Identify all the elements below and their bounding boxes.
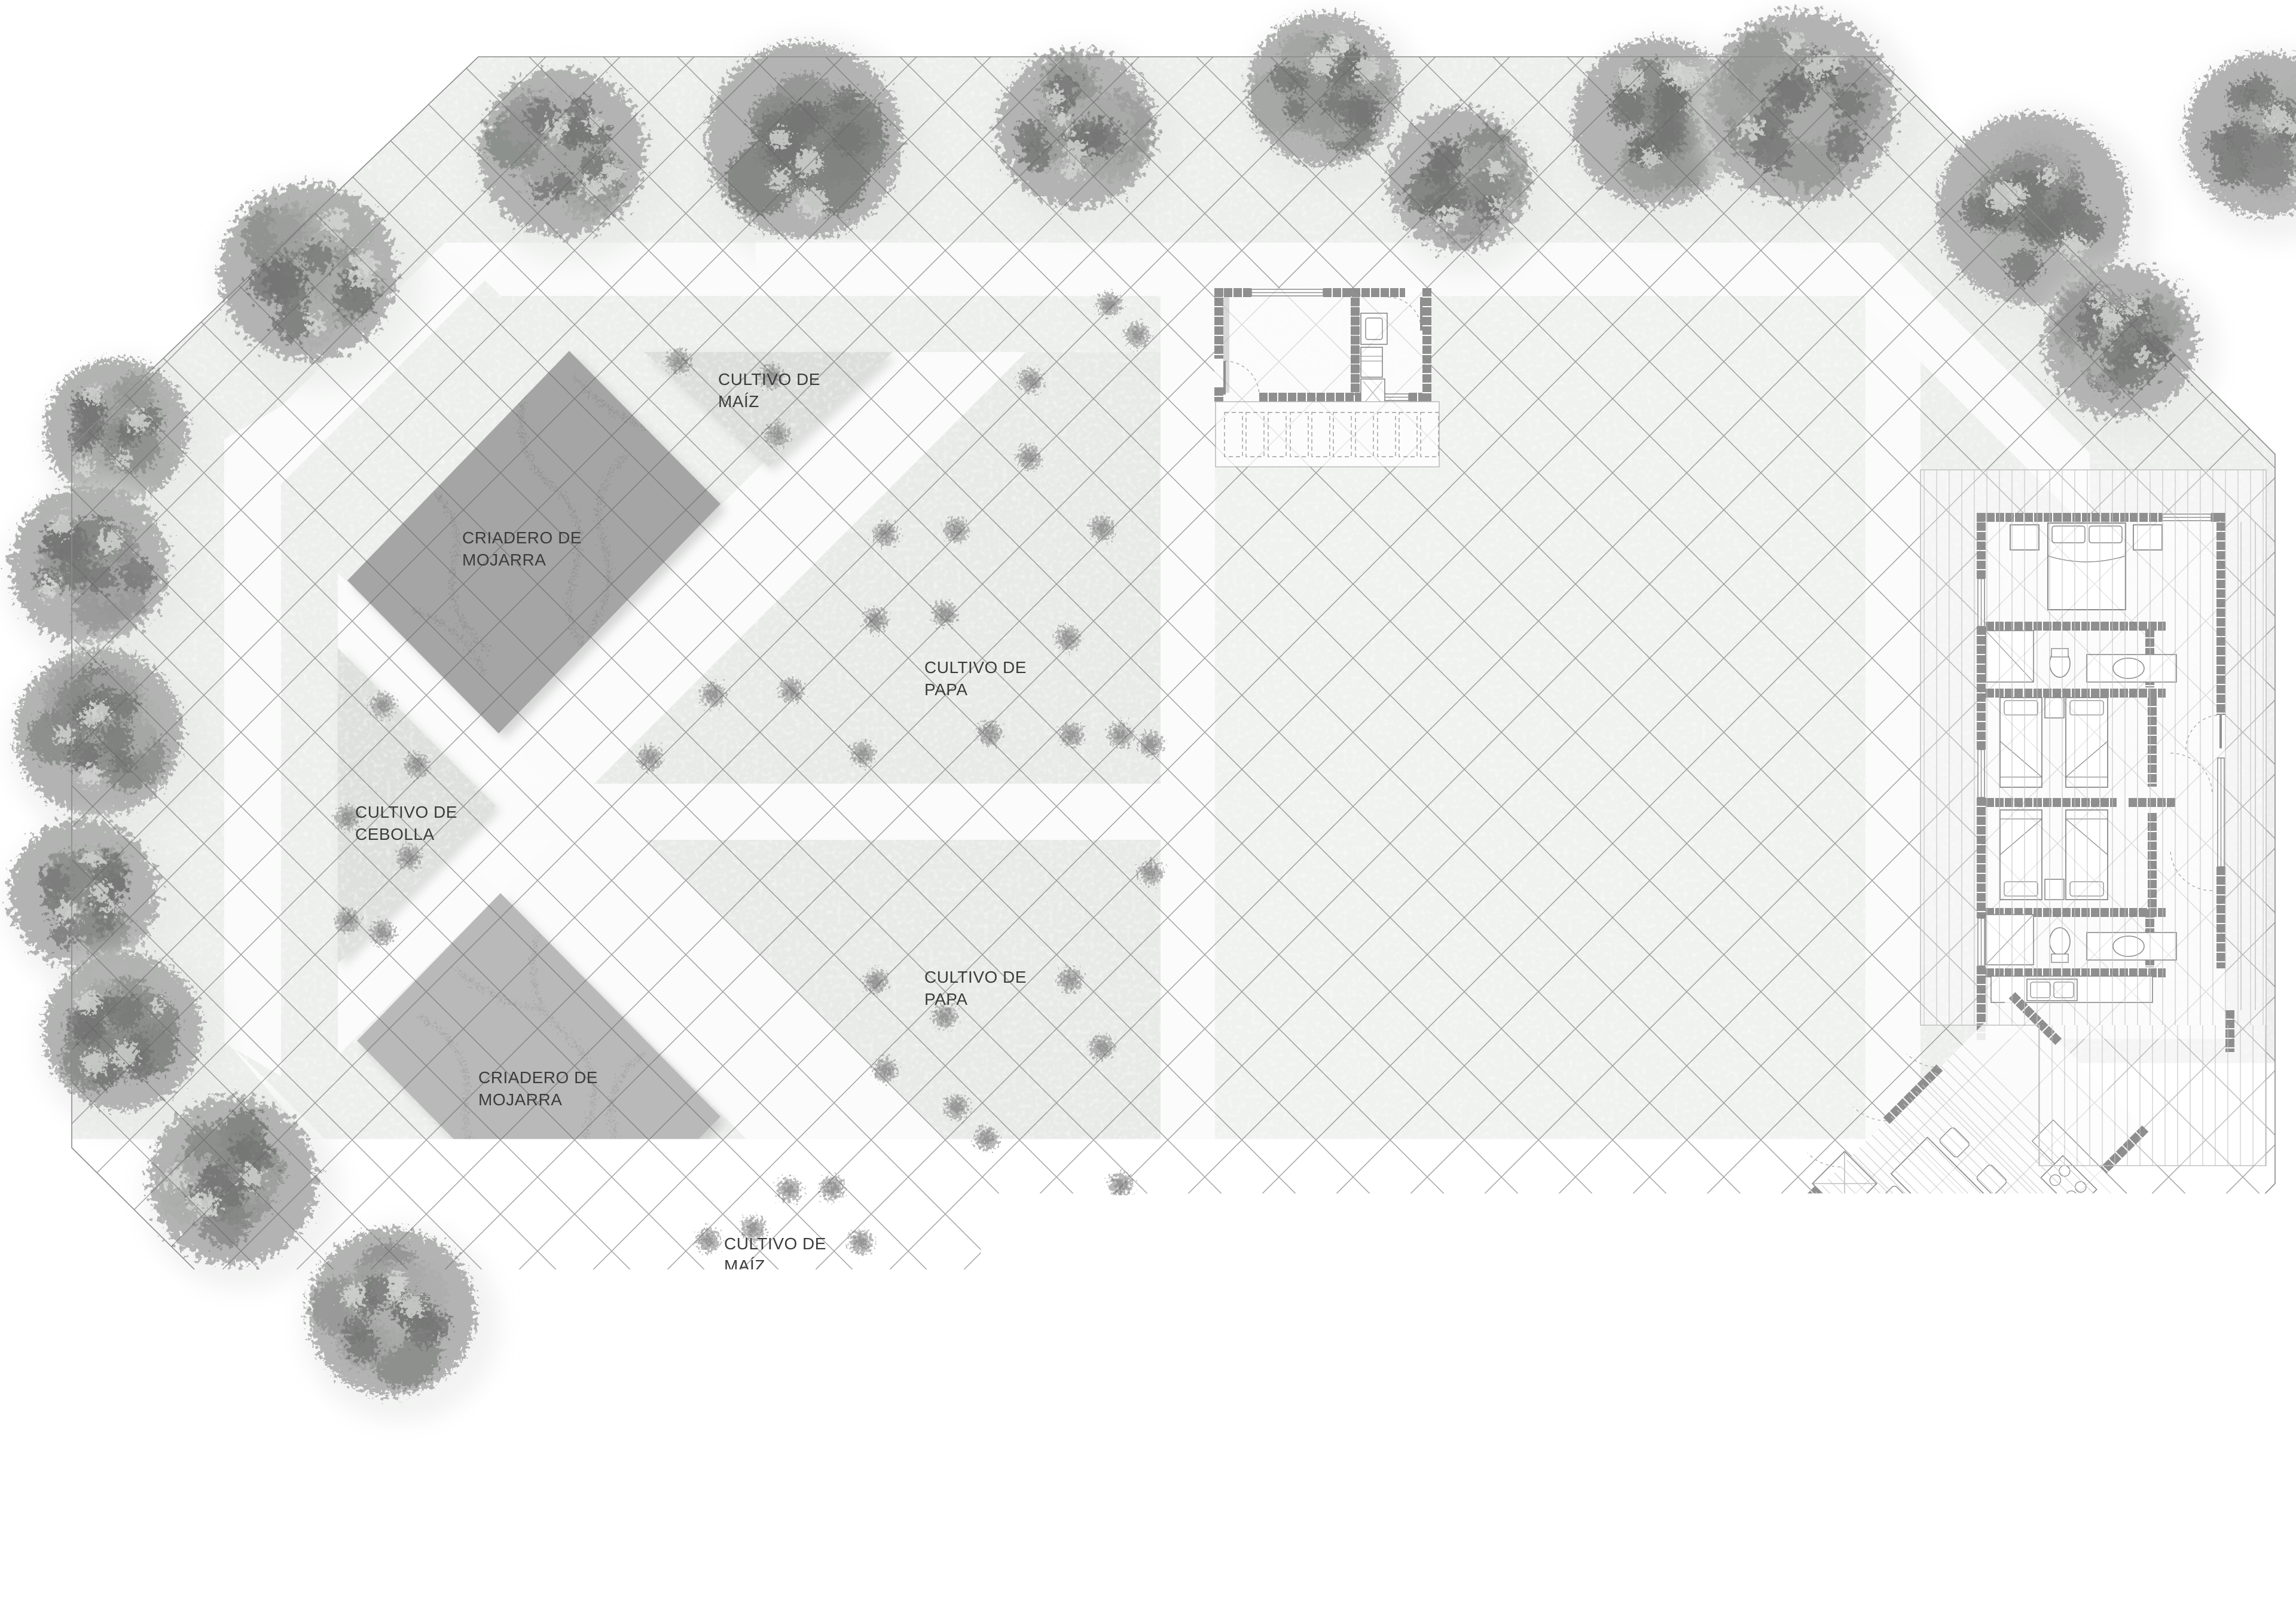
svg-text:MOJARRA: MOJARRA [462, 551, 546, 569]
svg-text:CRIADERO DE: CRIADERO DE [462, 528, 582, 547]
svg-text:MAÍZ: MAÍZ [724, 1256, 765, 1275]
svg-text:PAPA: PAPA [924, 680, 968, 699]
svg-text:CULTIVO DE: CULTIVO DE [718, 370, 820, 389]
svg-text:CULTIVO DE: CULTIVO DE [924, 658, 1027, 677]
svg-text:CULTIVO DE: CULTIVO DE [924, 968, 1027, 986]
svg-text:MAÍZ: MAÍZ [718, 392, 759, 411]
svg-text:CULTIVO DE: CULTIVO DE [355, 803, 457, 821]
svg-text:CEBOLLA: CEBOLLA [355, 825, 435, 843]
svg-text:CULTIVO DE: CULTIVO DE [724, 1234, 826, 1253]
svg-text:PAPA: PAPA [924, 990, 968, 1008]
svg-text:MOJARRA: MOJARRA [478, 1090, 562, 1109]
svg-text:CRIADERO DE: CRIADERO DE [478, 1068, 598, 1087]
